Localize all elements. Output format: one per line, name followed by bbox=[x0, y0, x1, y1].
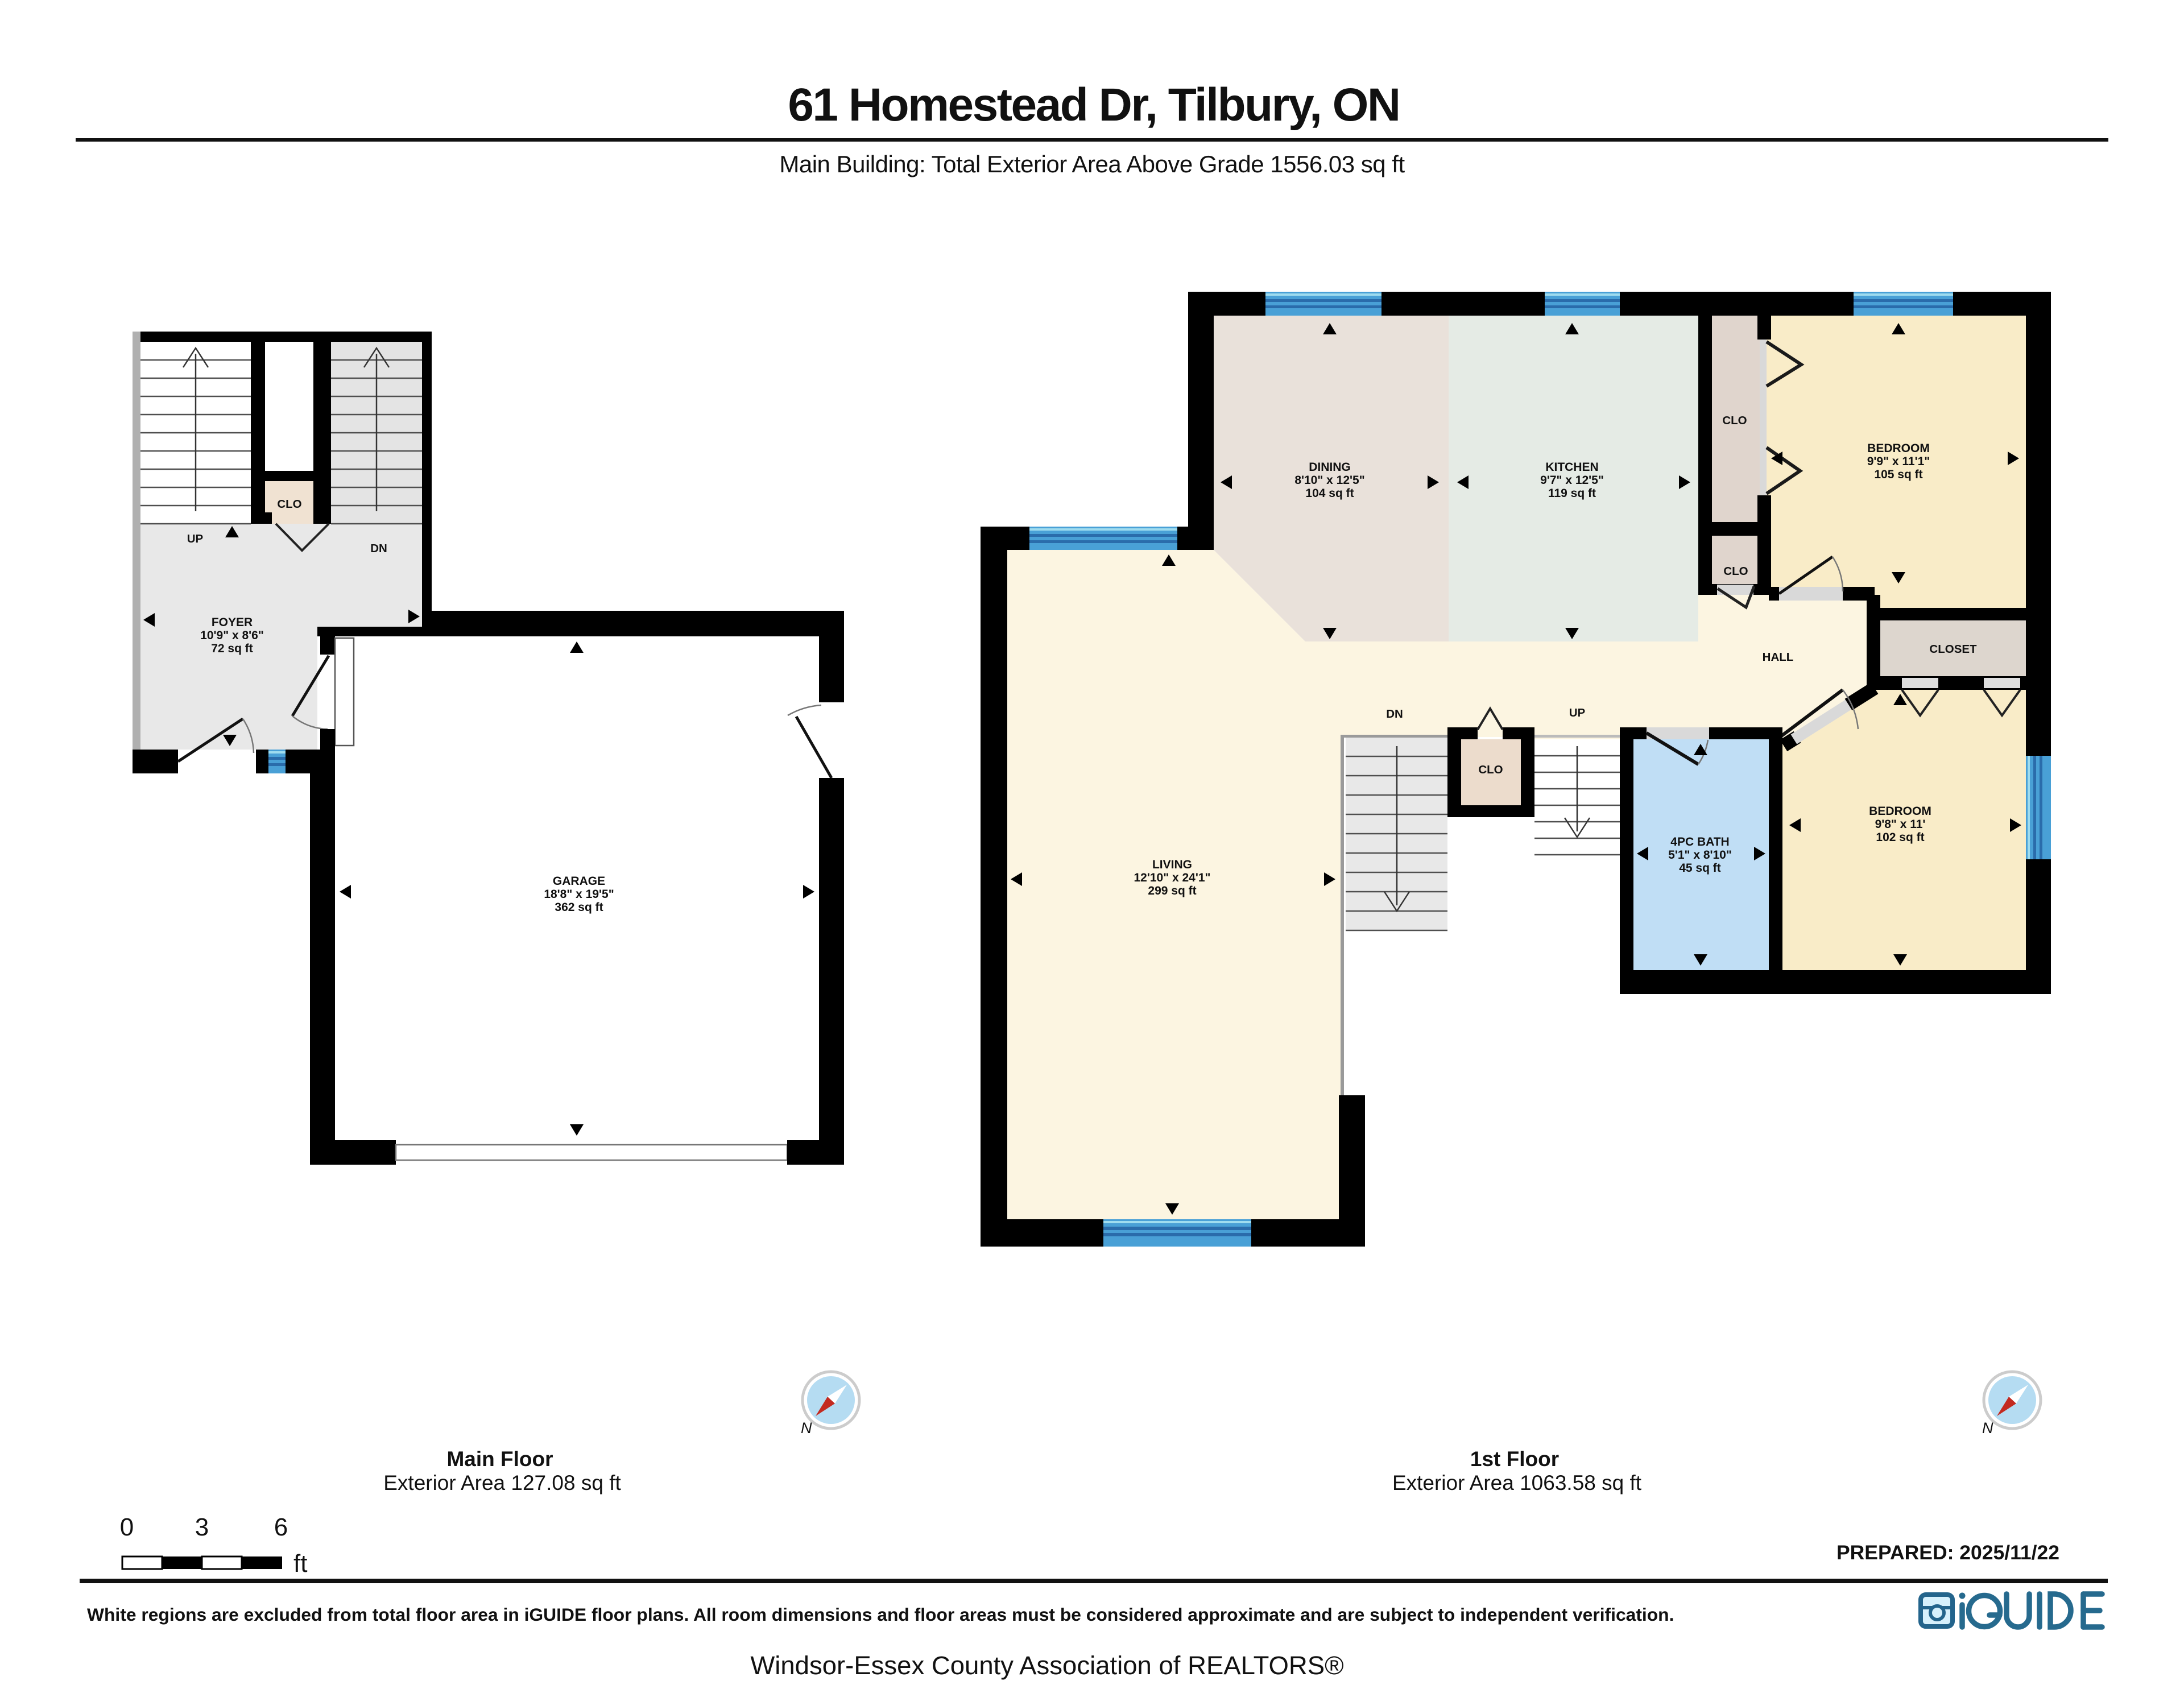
svg-text:HALL: HALL bbox=[1763, 651, 1794, 664]
svg-text:UP: UP bbox=[187, 532, 203, 545]
svg-text:10'9" x 8'6": 10'9" x 8'6" bbox=[200, 629, 264, 642]
svg-text:362 sq ft: 362 sq ft bbox=[555, 901, 603, 914]
svg-text:LIVING: LIVING bbox=[1152, 858, 1192, 871]
svg-text:Exterior Area 127.08 sq ft: Exterior Area 127.08 sq ft bbox=[383, 1471, 621, 1495]
svg-text:Main Building: Total Exterior: Main Building: Total Exterior Area Above… bbox=[779, 151, 1405, 177]
svg-text:N: N bbox=[1982, 1419, 1993, 1437]
svg-text:BEDROOM: BEDROOM bbox=[1867, 442, 1930, 455]
svg-text:Main Floor: Main Floor bbox=[446, 1447, 553, 1471]
svg-text:6: 6 bbox=[274, 1513, 288, 1541]
svg-text:ft: ft bbox=[293, 1550, 307, 1578]
svg-text:61 Homestead Dr, Tilbury, ON: 61 Homestead Dr, Tilbury, ON bbox=[788, 79, 1399, 131]
svg-text:Windsor-Essex County Associati: Windsor-Essex County Association of REAL… bbox=[750, 1651, 1343, 1680]
svg-text:72 sq ft: 72 sq ft bbox=[211, 642, 253, 655]
svg-text:Exterior Area 1063.58 sq ft: Exterior Area 1063.58 sq ft bbox=[1392, 1471, 1642, 1495]
svg-text:1st Floor: 1st Floor bbox=[1470, 1447, 1559, 1471]
svg-text:9'7" x 12'5": 9'7" x 12'5" bbox=[1540, 474, 1604, 487]
svg-text:8'10" x 12'5": 8'10" x 12'5" bbox=[1294, 474, 1364, 487]
svg-text:DINING: DINING bbox=[1309, 461, 1351, 474]
svg-text:CLO: CLO bbox=[1723, 565, 1748, 578]
svg-text:119 sq ft: 119 sq ft bbox=[1548, 487, 1596, 500]
svg-text:FOYER: FOYER bbox=[212, 616, 253, 629]
svg-text:DN: DN bbox=[1386, 707, 1403, 721]
svg-text:104 sq ft: 104 sq ft bbox=[1305, 487, 1354, 500]
svg-text:BEDROOM: BEDROOM bbox=[1869, 805, 1931, 818]
svg-text:White regions are excluded fro: White regions are excluded from total fl… bbox=[87, 1604, 1674, 1625]
svg-text:102 sq ft: 102 sq ft bbox=[1876, 831, 1924, 844]
svg-text:18'8" x 19'5": 18'8" x 19'5" bbox=[544, 888, 614, 901]
svg-text:UP: UP bbox=[1569, 706, 1585, 719]
svg-text:9'8" x 11': 9'8" x 11' bbox=[1875, 818, 1926, 831]
svg-text:CLO: CLO bbox=[1478, 763, 1503, 776]
svg-text:5'1" x 8'10": 5'1" x 8'10" bbox=[1668, 848, 1732, 862]
svg-text:CLO: CLO bbox=[1722, 414, 1747, 427]
svg-text:DN: DN bbox=[370, 542, 387, 555]
svg-text:CLO: CLO bbox=[277, 498, 301, 511]
svg-text:45 sq ft: 45 sq ft bbox=[1679, 862, 1721, 875]
svg-text:12'10" x 24'1": 12'10" x 24'1" bbox=[1134, 871, 1210, 884]
svg-text:0: 0 bbox=[120, 1513, 134, 1541]
svg-text:4PC BATH: 4PC BATH bbox=[1670, 835, 1729, 848]
svg-text:9'9" x 11'1": 9'9" x 11'1" bbox=[1867, 455, 1930, 468]
svg-text:3: 3 bbox=[195, 1513, 209, 1541]
svg-text:CLOSET: CLOSET bbox=[1929, 643, 1977, 656]
svg-text:105 sq ft: 105 sq ft bbox=[1874, 468, 1922, 481]
svg-text:N: N bbox=[801, 1419, 812, 1437]
svg-text:KITCHEN: KITCHEN bbox=[1545, 461, 1598, 474]
svg-text:299 sq ft: 299 sq ft bbox=[1148, 884, 1196, 897]
svg-text:GARAGE: GARAGE bbox=[553, 875, 605, 888]
svg-text:PREPARED: 2025/11/22: PREPARED: 2025/11/22 bbox=[1836, 1541, 2059, 1564]
